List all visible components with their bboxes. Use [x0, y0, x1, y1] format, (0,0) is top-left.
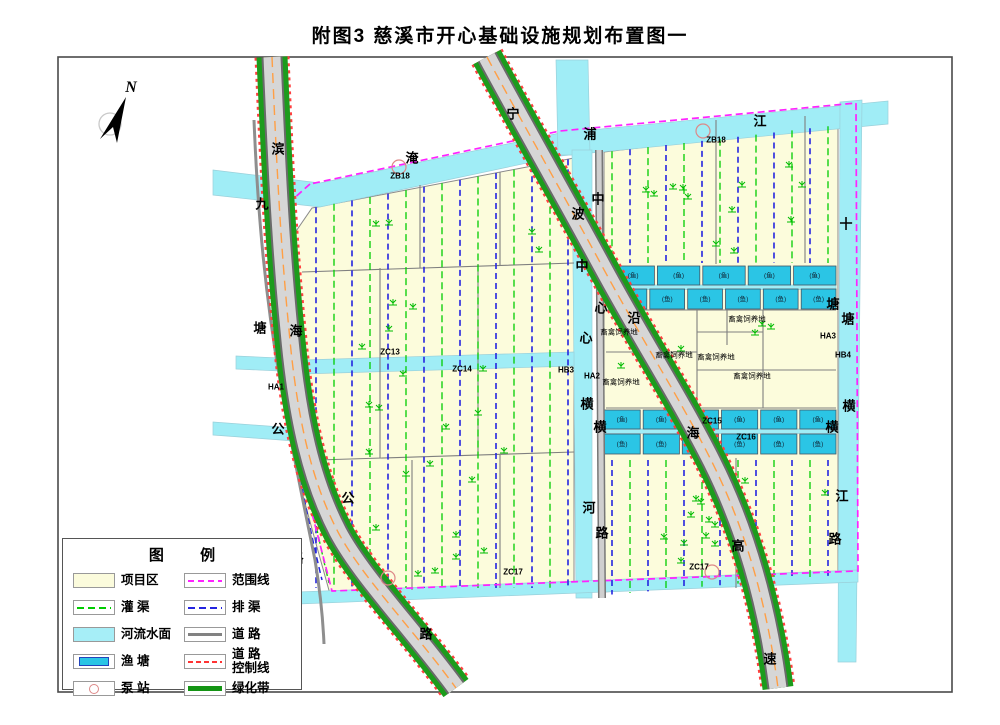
legend-symbol-line-irrigation	[73, 600, 115, 615]
legend-label: 泵 站	[121, 682, 149, 695]
legend-symbol-symbol-pump	[73, 681, 115, 696]
fish-pond-label: (鱼)	[628, 271, 639, 280]
legend-symbol-line-drainage	[184, 600, 226, 615]
legend-item: 渔 塘	[73, 651, 184, 672]
legend: 图 例 项目区范围线灌 渠排 渠河流水面道 路渔 塘道 路 控制线泵 站绿化带	[62, 538, 302, 690]
fish-pond-label: (鱼)	[812, 439, 823, 448]
legend-label: 灌 渠	[121, 601, 149, 614]
legend-symbol-line-boundary	[184, 573, 226, 588]
fish-pond-label: (鱼)	[719, 271, 730, 280]
legend-item: 道 路 控制线	[184, 651, 295, 672]
legend-label: 范围线	[232, 574, 270, 587]
legend-item: 灌 渠	[73, 597, 184, 618]
fish-pond-label: (鱼)	[617, 415, 628, 424]
legend-label: 绿化带	[232, 682, 270, 695]
fish-pond-label: (鱼)	[737, 294, 748, 303]
legend-title: 图 例	[63, 544, 301, 565]
fish-pond-label: (鱼)	[809, 271, 820, 280]
legend-item: 道 路	[184, 624, 295, 645]
legend-item: 绿化带	[184, 678, 295, 699]
fish-pond-label: (鱼)	[775, 294, 786, 303]
legend-label: 排 渠	[232, 601, 260, 614]
fish-pond-label: (鱼)	[617, 439, 628, 448]
fish-pond-label: (鱼)	[812, 415, 823, 424]
legend-label: 渔 塘	[121, 655, 149, 668]
legend-symbol-area-pond	[73, 654, 115, 669]
legend-item: 项目区	[73, 570, 184, 591]
legend-label: 道 路 控制线	[232, 648, 270, 674]
legend-item: 范围线	[184, 570, 295, 591]
legend-label: 项目区	[121, 574, 159, 587]
legend-item: 河流水面	[73, 624, 184, 645]
legend-label: 道 路	[232, 628, 260, 641]
road-central	[599, 150, 602, 598]
planning-figure: 附图3 慈溪市开心基础设施规划布置图一	[0, 0, 1000, 725]
fish-pond-label: (鱼)	[764, 271, 775, 280]
fish-pond-label: (鱼)	[673, 271, 684, 280]
legend-symbol-area-project	[73, 573, 115, 588]
river-center-upper	[556, 60, 590, 155]
legend-label: 河流水面	[121, 628, 171, 641]
legend-grid: 项目区范围线灌 渠排 渠河流水面道 路渔 塘道 路 控制线泵 站绿化带	[63, 565, 301, 699]
legend-symbol-area-river	[73, 627, 115, 642]
legend-item: 泵 站	[73, 678, 184, 699]
fish-pond-label: (鱼)	[773, 439, 784, 448]
fish-pond-label: (鱼)	[734, 439, 745, 448]
legend-item: 排 渠	[184, 597, 295, 618]
legend-symbol-line-road	[184, 627, 226, 642]
fish-pond-label: (鱼)	[656, 439, 667, 448]
fish-pond-label: (鱼)	[700, 294, 711, 303]
fish-pond-label: (鱼)	[656, 415, 667, 424]
fish-pond-label: (鱼)	[813, 294, 824, 303]
fish-pond-label: (鱼)	[773, 415, 784, 424]
fish-pond-label: (鱼)	[662, 294, 673, 303]
pond-channel-2	[604, 429, 836, 434]
legend-symbol-line-road-control	[184, 654, 226, 669]
fish-pond-label: (鱼)	[734, 415, 745, 424]
legend-symbol-line-greenbelt	[184, 681, 226, 696]
